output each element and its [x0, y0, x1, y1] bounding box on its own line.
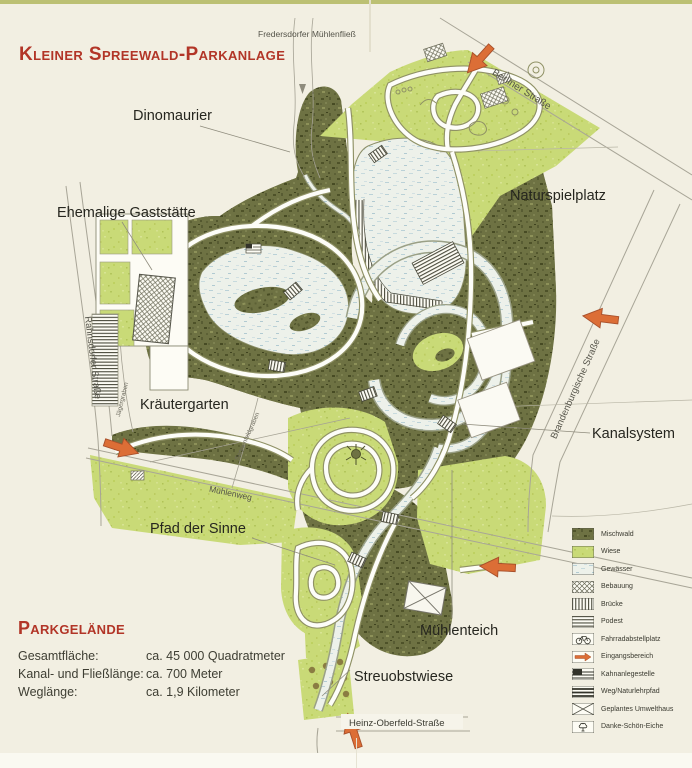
- legend-item-wiese: Wiese: [572, 546, 673, 559]
- legend-item-fahrrad: Fahrradabstellplatz: [572, 633, 673, 646]
- entrance-arrow-east: [582, 306, 620, 330]
- legend-label: Geplantes Umwelthaus: [601, 706, 673, 713]
- gaststaette-complex: [92, 214, 188, 406]
- info-row: Weglänge: ca. 1,9 Kilometer: [18, 683, 285, 701]
- umwelthaus-icon: [572, 703, 594, 715]
- entrance-arrow-icon: [572, 651, 594, 663]
- feature-label-dinomaurier: Dinomaurier: [133, 108, 212, 124]
- scan-edge-top: [0, 0, 692, 4]
- street-label: Heinz-Oberfeld-Straße: [349, 718, 445, 729]
- legend-label: Gewässer: [601, 566, 633, 573]
- info-value: ca. 45 000 Quadratmeter: [146, 647, 285, 665]
- feature-label-naturspielplatz: Naturspielplatz: [510, 188, 606, 204]
- scan-edge-bottom: [0, 753, 692, 768]
- legend-label: Kahnanlegestelle: [601, 671, 655, 678]
- legend-label: Brücke: [601, 601, 623, 608]
- page-title: Kleiner Spreewald-Parkanlage: [19, 44, 285, 66]
- bike-parking: [131, 471, 144, 480]
- fold-crease: [369, 0, 371, 52]
- boat-landing: [246, 244, 261, 253]
- bebauung-swatch: [572, 581, 594, 593]
- street-label: Fredersdorfer Mühlenfließ: [258, 29, 356, 39]
- brochure-page: Fredersdorfer Mühlenfließ Berliner Straß…: [0, 0, 692, 768]
- gewaesser-swatch: [572, 563, 594, 575]
- legend-item-bruecke: Brücke: [572, 598, 673, 611]
- info-value: ca. 1,9 Kilometer: [146, 683, 240, 701]
- feature-label-kanalsystem: Kanalsystem: [592, 426, 675, 442]
- info-value: ca. 700 Meter: [146, 665, 222, 683]
- legend-item-eiche: Danke-Schön-Eiche: [572, 721, 673, 734]
- feature-label-streuobstwiese: Streuobstwiese: [354, 669, 453, 685]
- legend-label: Weg/Naturlehrpfad: [601, 688, 660, 695]
- legend-label: Bebauung: [601, 583, 633, 590]
- oak-tree-icon: [572, 721, 594, 733]
- gaststaette-building: [133, 274, 176, 343]
- info-label: Kanal- und Fließlänge:: [18, 665, 146, 683]
- planned-umwelthaus: [404, 581, 446, 615]
- feature-label-muehlenteich: Mühlenteich: [420, 623, 498, 639]
- legend-item-weg: Weg/Naturlehrpfad: [572, 686, 673, 699]
- info-label: Weglänge:: [18, 683, 146, 701]
- legend-item-podest: Podest: [572, 616, 673, 629]
- mischwald-swatch: [572, 528, 594, 540]
- legend-label: Mischwald: [601, 531, 634, 538]
- legend-item-mischwald: Mischwald: [572, 528, 673, 541]
- legend-label: Fahrradabstellplatz: [601, 636, 661, 643]
- bicycle-icon: [572, 633, 594, 645]
- legend-label: Wiese: [601, 548, 620, 555]
- info-heading: Parkgelände: [18, 618, 285, 639]
- legend-label: Eingangsbereich: [601, 653, 653, 660]
- feature-label-kraeutergarten: Kräutergarten: [140, 397, 229, 413]
- wiese-swatch: [572, 546, 594, 558]
- legend-item-umwelthaus: Geplantes Umwelthaus: [572, 703, 673, 716]
- legend-item-bebauung: Bebauung: [572, 581, 673, 594]
- info-row: Kanal- und Fließlänge: ca. 700 Meter: [18, 665, 285, 683]
- legend-item-gewaesser: Gewässer: [572, 563, 673, 576]
- fold-crease: [356, 738, 357, 768]
- bruecke-swatch: [572, 598, 594, 610]
- podest-swatch: [572, 616, 594, 628]
- legend-label: Danke-Schön-Eiche: [601, 723, 663, 730]
- legend-label: Podest: [601, 618, 623, 625]
- info-row: Gesamtfläche: ca. 45 000 Quadratmeter: [18, 647, 285, 665]
- park-info-block: Parkgelände Gesamtfläche: ca. 45 000 Qua…: [18, 618, 285, 701]
- feature-label-pfad-der-sinne: Pfad der Sinne: [150, 521, 246, 537]
- legend-item-kahn: Kahnanlegestelle: [572, 668, 673, 681]
- legend-item-eingang: Eingangsbereich: [572, 651, 673, 664]
- boat-landing-icon: [572, 668, 594, 680]
- path-icon: [572, 686, 594, 698]
- info-label: Gesamtfläche:: [18, 647, 146, 665]
- map-legend: Mischwald Wiese Gewässer Bebauung Brücke: [572, 528, 673, 733]
- feature-label-gaststaette: Ehemalige Gaststätte: [57, 205, 196, 221]
- stream-flow-arrow: [299, 84, 306, 94]
